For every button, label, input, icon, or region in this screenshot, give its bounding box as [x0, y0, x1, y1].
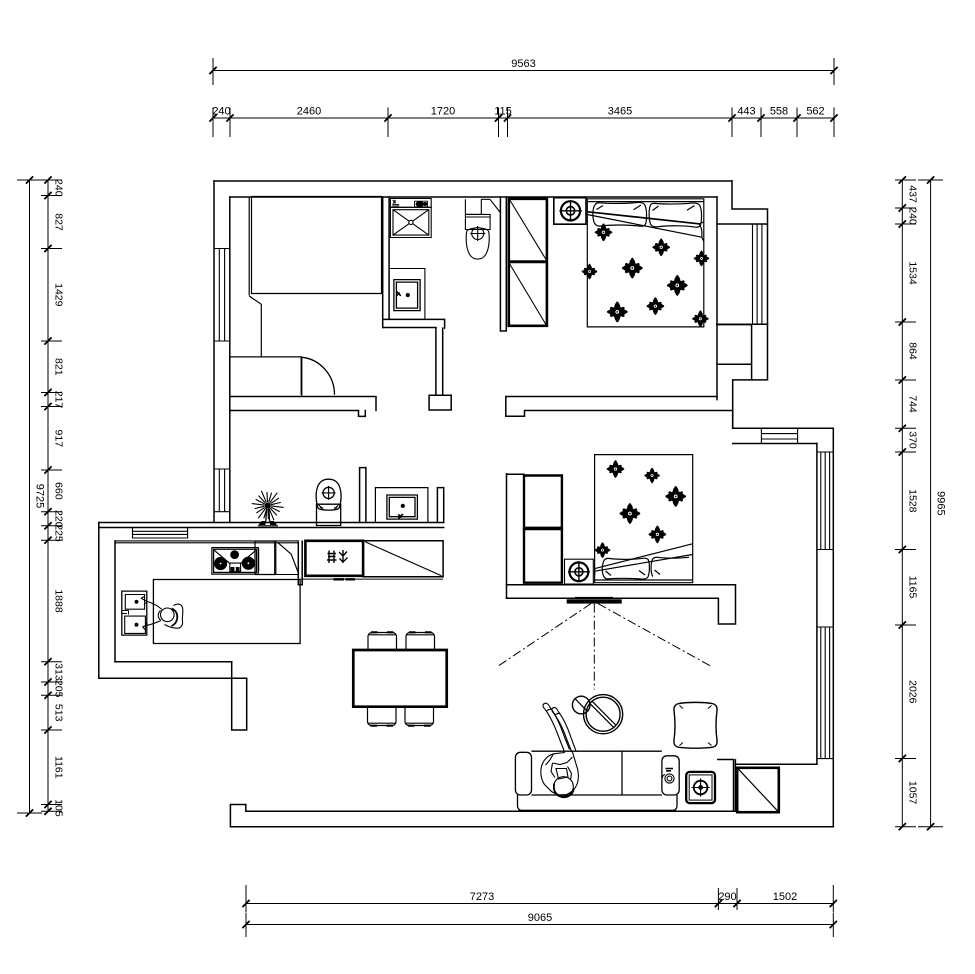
- svg-text:864: 864: [907, 342, 919, 360]
- svg-text:1720: 1720: [431, 106, 455, 118]
- svg-text:240: 240: [53, 179, 65, 197]
- svg-text:821: 821: [53, 358, 65, 376]
- svg-text:1528: 1528: [907, 489, 919, 513]
- svg-text:1165: 1165: [907, 576, 919, 599]
- svg-text:917: 917: [53, 430, 65, 448]
- svg-text:240: 240: [907, 207, 919, 225]
- svg-text:2460: 2460: [297, 106, 321, 118]
- svg-text:115: 115: [494, 106, 512, 118]
- svg-text:2026: 2026: [907, 680, 919, 704]
- svg-text:205: 205: [53, 680, 65, 698]
- svg-text:9065: 9065: [528, 912, 552, 924]
- svg-text:513: 513: [53, 704, 65, 722]
- svg-text:370: 370: [907, 431, 919, 449]
- svg-text:105: 105: [53, 799, 65, 817]
- svg-text:1534: 1534: [907, 261, 919, 285]
- svg-text:217: 217: [53, 391, 65, 409]
- svg-text:660: 660: [53, 482, 65, 500]
- svg-text:744: 744: [907, 395, 919, 413]
- svg-text:313: 313: [53, 663, 65, 681]
- svg-text:9563: 9563: [511, 58, 535, 70]
- svg-text:827: 827: [53, 213, 65, 231]
- svg-text:1502: 1502: [773, 891, 797, 903]
- svg-text:9965: 9965: [935, 491, 947, 515]
- svg-text:3465: 3465: [608, 106, 632, 118]
- svg-text:9725: 9725: [34, 484, 46, 508]
- svg-text:1429: 1429: [53, 283, 65, 307]
- svg-text:437: 437: [907, 185, 919, 203]
- svg-text:562: 562: [806, 106, 824, 118]
- svg-text:443: 443: [737, 106, 755, 118]
- svg-text:1888: 1888: [53, 589, 65, 613]
- svg-text:558: 558: [770, 106, 788, 118]
- svg-text:1057: 1057: [907, 781, 919, 805]
- svg-text:225: 225: [53, 524, 65, 542]
- svg-text:1161: 1161: [53, 756, 65, 779]
- svg-text:290: 290: [718, 891, 736, 903]
- svg-text:240: 240: [212, 106, 230, 118]
- svg-text:7273: 7273: [470, 891, 494, 903]
